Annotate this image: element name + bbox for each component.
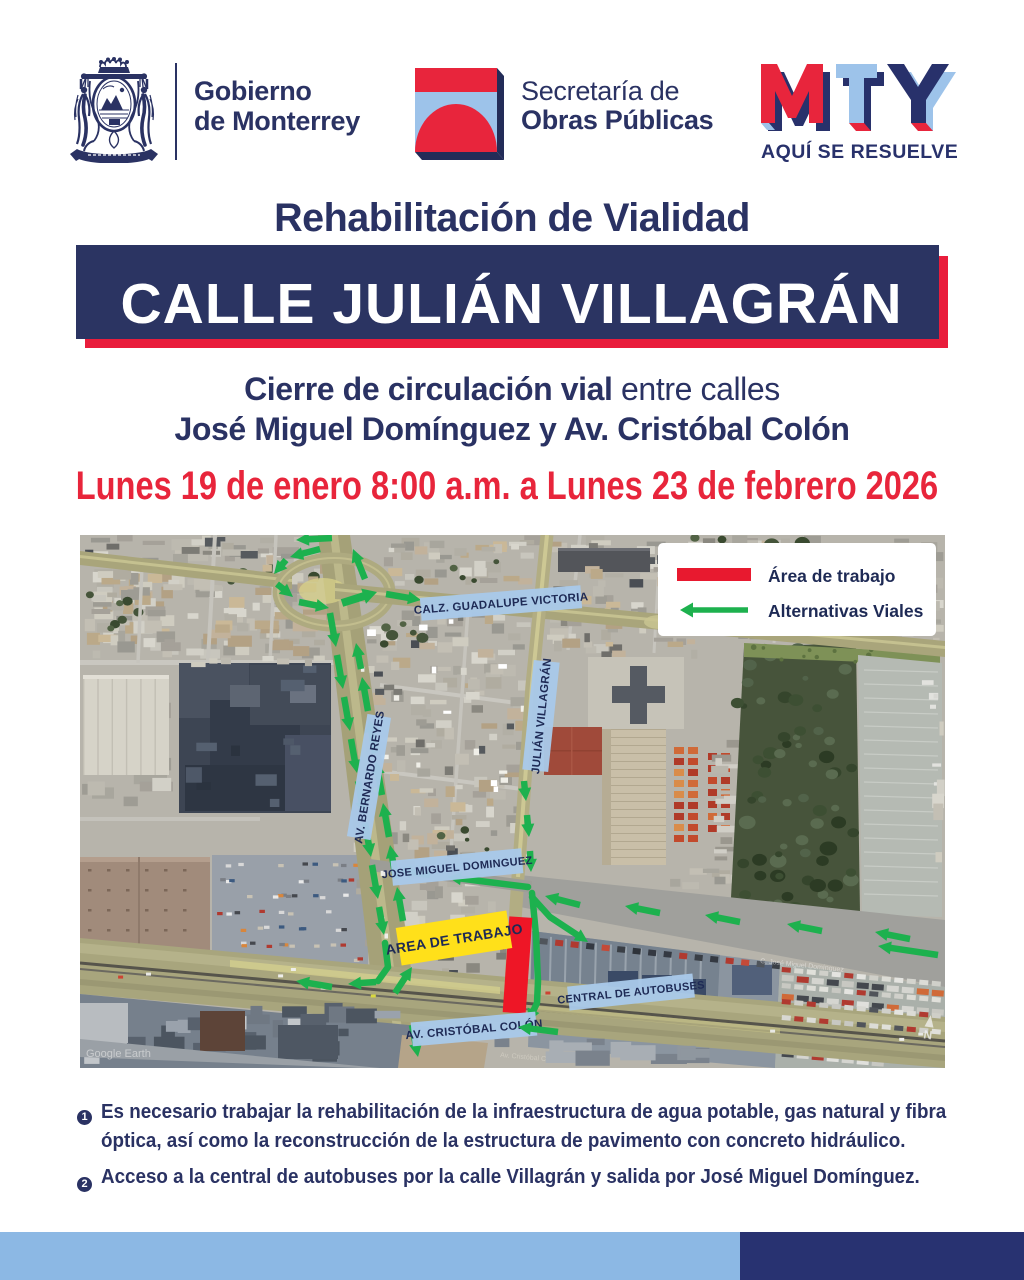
svg-text:Alternativas Viales: Alternativas Viales [768, 601, 924, 621]
svg-text:AQUÍ SE RESUELVE: AQUÍ SE RESUELVE [761, 140, 958, 163]
svg-text:Google Earth: Google Earth [86, 1048, 151, 1060]
svg-text:Área de trabajo: Área de trabajo [768, 565, 895, 586]
